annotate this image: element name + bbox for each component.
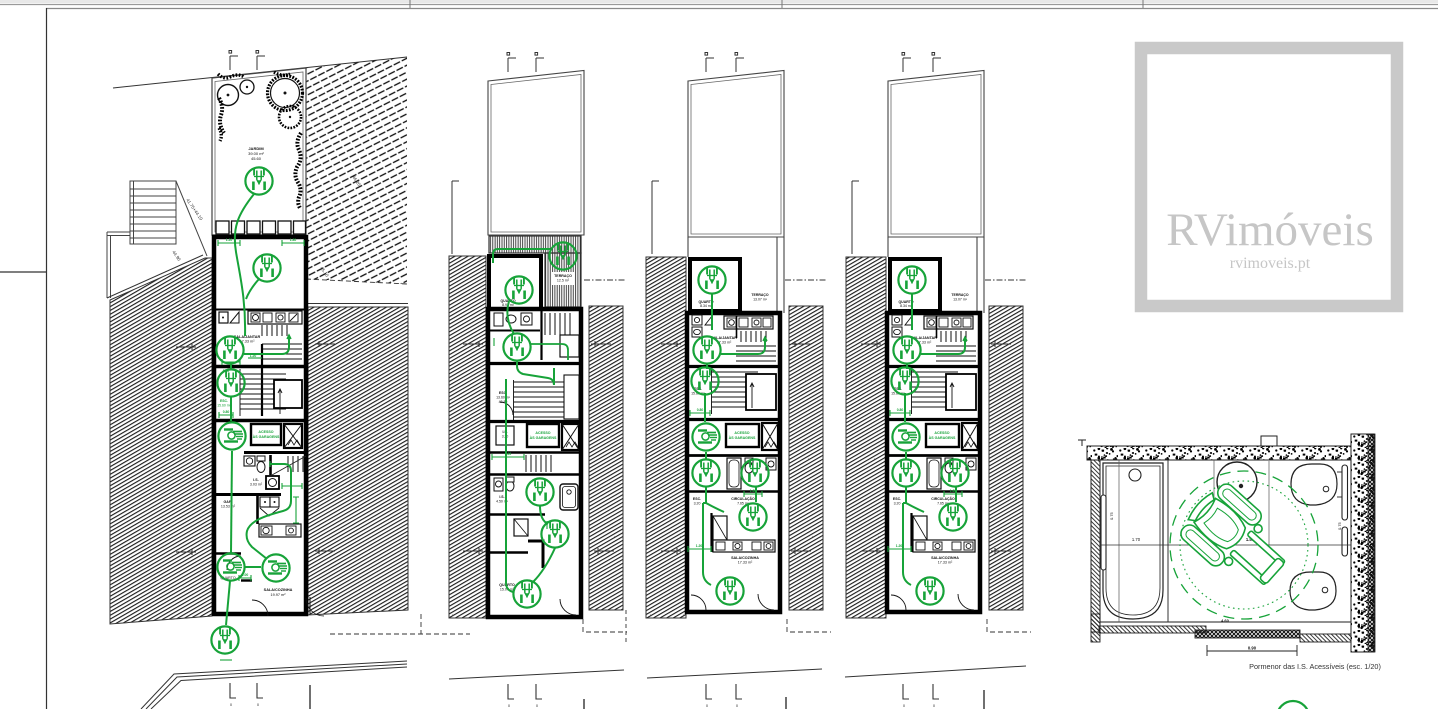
svg-text:19.97 m²: 19.97 m² xyxy=(271,593,287,597)
svg-text:13.53 m²: 13.53 m² xyxy=(221,505,236,509)
svg-text:1.20: 1.20 xyxy=(696,544,703,548)
svg-text:0.80: 0.80 xyxy=(697,408,704,412)
svg-text:3.03 m²: 3.03 m² xyxy=(250,483,263,487)
svg-text:1.70: 1.70 xyxy=(1132,537,1141,542)
svg-text:I.S.: I.S. xyxy=(499,495,504,499)
svg-text:TERRAÇO: TERRAÇO xyxy=(751,293,769,297)
svg-text:8.34 m²: 8.34 m² xyxy=(700,304,713,308)
svg-text:SALA/COZINHA: SALA/COZINHA xyxy=(731,556,759,560)
svg-text:1.20: 1.20 xyxy=(250,354,257,358)
svg-text:ACESSO: ACESSO xyxy=(258,430,273,434)
svg-text:1.20: 1.20 xyxy=(505,452,512,456)
svg-text:SALA/COZINHA: SALA/COZINHA xyxy=(264,588,293,592)
svg-text:ESC.: ESC. xyxy=(693,497,701,501)
svg-text:15.60 m²: 15.60 m² xyxy=(217,404,231,408)
svg-text:TERRAÇO: TERRAÇO xyxy=(554,274,572,278)
svg-text:0.80: 0.80 xyxy=(223,369,230,373)
svg-text:17.33 m²: 17.33 m² xyxy=(738,561,753,565)
svg-text:3.20: 3.20 xyxy=(694,502,701,506)
svg-text:ESC.: ESC. xyxy=(220,399,228,403)
svg-text:1.00: 1.00 xyxy=(242,573,249,577)
svg-text:ÀS GARAGENS: ÀS GARAGENS xyxy=(253,434,280,439)
svg-text:CIRCULAÇÃO: CIRCULAÇÃO xyxy=(731,496,755,501)
svg-text:1.80: 1.80 xyxy=(290,238,297,242)
svg-text:0.90: 0.90 xyxy=(1248,646,1257,651)
svg-text:1.60: 1.60 xyxy=(750,489,757,493)
svg-text:ÀS GARAGENS: ÀS GARAGENS xyxy=(729,435,756,440)
svg-text:13.60 m²: 13.60 m² xyxy=(496,396,511,400)
svg-text:Pormenor das I.S. Acessíveis (: Pormenor das I.S. Acessíveis (esc. 1/20) xyxy=(1249,662,1381,671)
svg-text:0.75: 0.75 xyxy=(1109,511,1114,520)
svg-text:rvimoveis.pt: rvimoveis.pt xyxy=(1230,255,1311,272)
svg-text:13.07 m²: 13.07 m² xyxy=(753,298,768,302)
svg-text:0.75: 0.75 xyxy=(1337,521,1342,530)
svg-text:ACESSO: ACESSO xyxy=(734,431,749,435)
svg-text:ACESSO: ACESSO xyxy=(535,431,550,435)
svg-text:I.S.: I.S. xyxy=(253,478,258,482)
svg-text:12.5 m²: 12.5 m² xyxy=(557,279,570,283)
svg-text:45.60: 45.60 xyxy=(251,156,262,161)
svg-text:4.60: 4.60 xyxy=(1221,618,1230,623)
svg-text:ÀS GARAGENS: ÀS GARAGENS xyxy=(530,435,557,440)
svg-text:0.80: 0.80 xyxy=(223,410,230,414)
svg-text:RVimóveis: RVimóveis xyxy=(1166,204,1374,256)
svg-text:1.20: 1.20 xyxy=(226,238,233,242)
